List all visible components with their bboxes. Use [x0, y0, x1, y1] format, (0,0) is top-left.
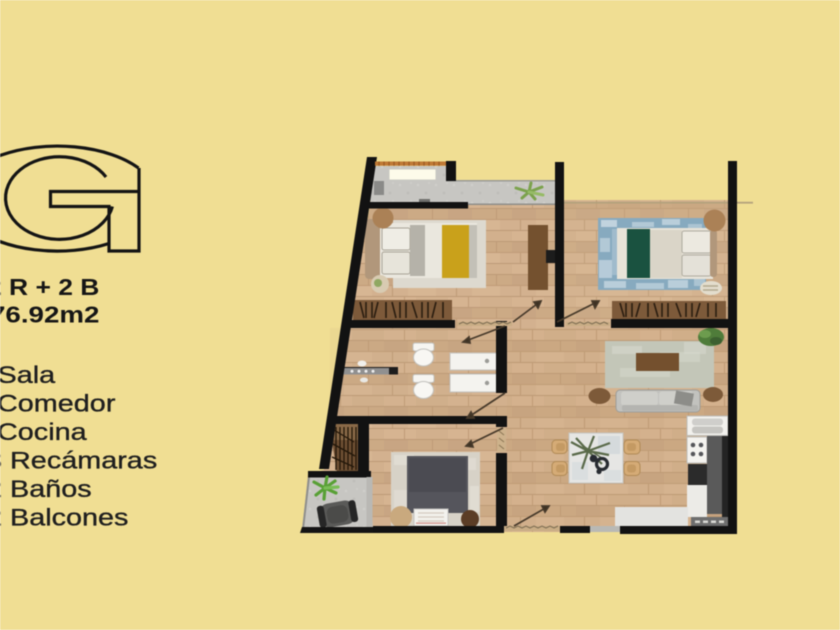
svg-text:Cocina: Cocina	[0, 418, 87, 445]
svg-text:3 Recámaras: 3 Recámaras	[0, 447, 157, 474]
svg-text:76.92m2: 76.92m2	[0, 302, 99, 328]
svg-text:Sala: Sala	[0, 361, 55, 388]
svg-text:2 Balcones: 2 Balcones	[0, 504, 128, 531]
svg-text:Comedor: Comedor	[0, 390, 116, 417]
svg-text:2 Baños: 2 Baños	[0, 475, 92, 502]
svg-text:2 R + 2 B: 2 R + 2 B	[0, 276, 99, 301]
